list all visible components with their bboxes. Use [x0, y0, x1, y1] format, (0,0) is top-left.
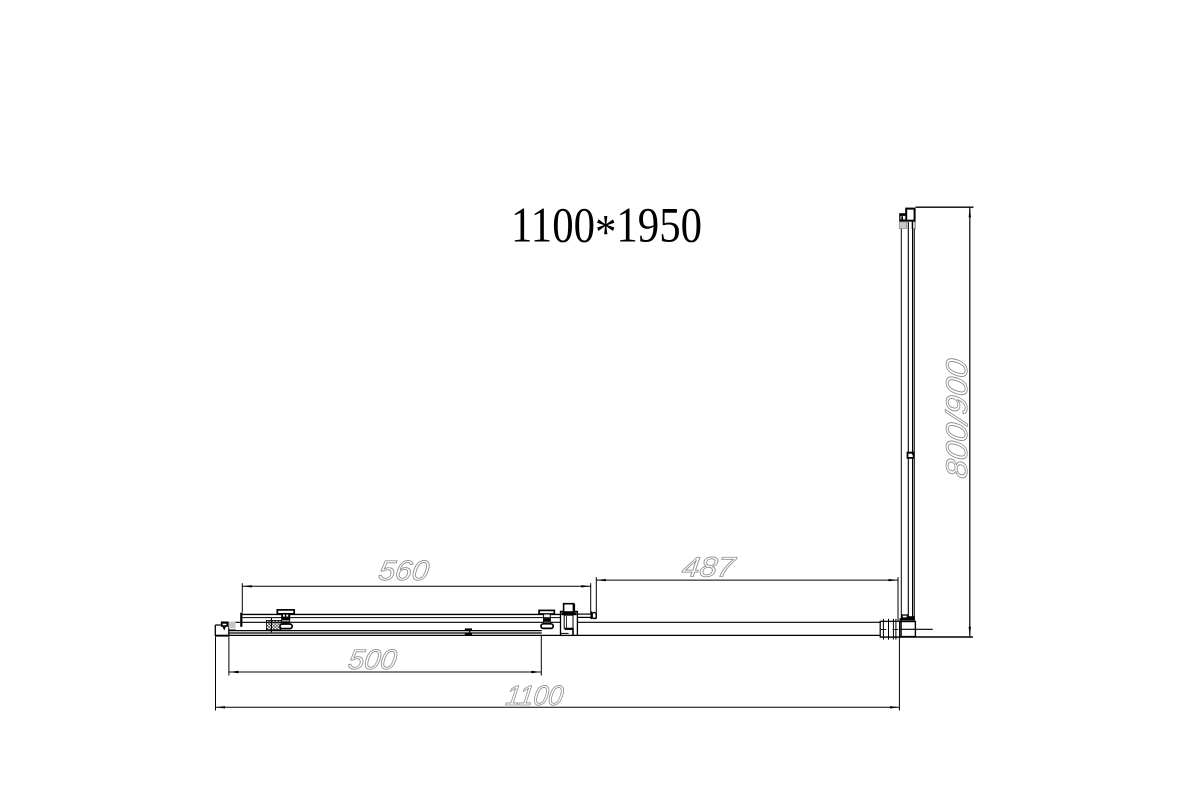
svg-text:500: 500: [346, 644, 399, 675]
svg-text:1100*1950: 1100*1950: [511, 197, 702, 260]
svg-text:560: 560: [377, 555, 432, 586]
svg-text:487: 487: [680, 551, 738, 582]
svg-text:800/900: 800/900: [941, 357, 974, 481]
svg-text:1100: 1100: [504, 680, 566, 711]
